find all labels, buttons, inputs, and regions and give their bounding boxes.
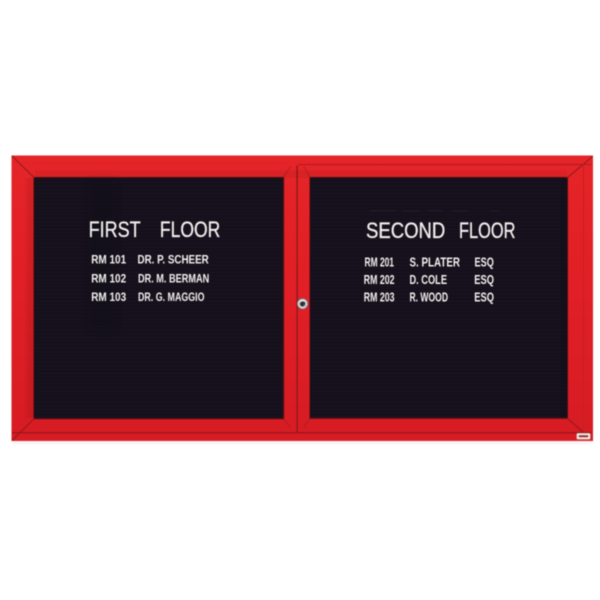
svg-text:RM 101: RM 101 <box>91 254 126 267</box>
svg-text:ESQ: ESQ <box>474 290 494 304</box>
svg-text:DR. G. MAGGIO: DR. G. MAGGIO <box>138 291 205 304</box>
svg-text:DR. P. SCHEER: DR. P. SCHEER <box>138 254 210 267</box>
svg-text:FIRST: FIRST <box>89 217 141 242</box>
svg-text:ESQ: ESQ <box>475 255 494 269</box>
svg-text:D. COLE: D. COLE <box>410 273 448 287</box>
svg-text:FLOOR: FLOOR <box>160 217 220 242</box>
svg-text:R. WOOD: R. WOOD <box>410 290 449 304</box>
svg-text:ESQ: ESQ <box>474 273 494 287</box>
svg-text:RM 103: RM 103 <box>91 291 126 304</box>
svg-text:RM 202: RM 202 <box>364 273 395 287</box>
svg-text:RM 201: RM 201 <box>365 255 395 269</box>
svg-text:FLOOR: FLOOR <box>459 218 515 243</box>
svg-text:RM 203: RM 203 <box>364 290 395 304</box>
svg-text:RM 102: RM 102 <box>91 272 126 285</box>
svg-text:SECOND: SECOND <box>366 218 445 243</box>
svg-text:S. PLATER: S. PLATER <box>410 255 461 269</box>
svg-text:DR. M. BERMAN: DR. M. BERMAN <box>138 272 209 285</box>
